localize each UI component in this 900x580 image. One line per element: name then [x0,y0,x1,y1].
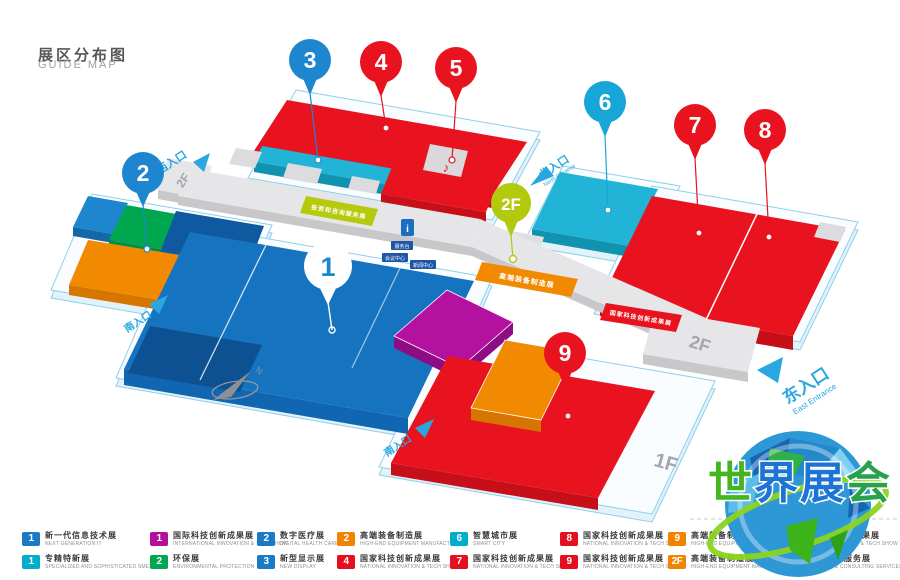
legend-zone-badge: 1 [150,532,168,546]
legend-zone-badge: 2 [257,532,275,546]
legend-item: 8国家科技创新成果展NATIONAL INNOVATION & TECH SHO… [560,532,682,547]
legend-zh: 智慧城市展 [473,532,518,540]
legend-zone-badge: 7 [450,555,468,569]
logo-char-1: 世 [708,459,752,508]
legend-zone-badge: 9 [668,532,686,546]
logo-char-3: 展 [800,459,844,508]
legend-zh: 专精特新展 [45,555,153,563]
legend-zone-badge: 4 [337,555,355,569]
legend-en: NEW DISPLAY [280,565,325,570]
logo-char-2: 界 [754,459,798,508]
legend-zh: 国家科技创新成果展 [473,555,572,563]
legend-item: 1新一代信息技术展NEXT GENERATION IT [22,532,117,547]
legend-item: 2高端装备制造展HIGH-END EQUIPMENT MANUFACTURING [337,532,467,547]
legend-en: NATIONAL INNOVATION & TECH SHOW [360,565,459,570]
legend-en: DIGITAL HEALTH CARE [280,542,339,547]
legend-zh: 国家科技创新成果展 [360,555,459,563]
world-expo-logo: 世 界 展 会 [690,418,900,580]
legend-item: 4国家科技创新成果展NATIONAL INNOVATION & TECH SHO… [337,555,459,570]
legend-item: 1专精特新展SPECIALIZED AND SOPHISTICATED SMES [22,555,153,570]
legend-zone-badge: 9 [560,555,578,569]
legend-en: SPECIALIZED AND SOPHISTICATED SMES [45,565,153,570]
legend-zone-badge: 2 [337,532,355,546]
legend-zh: 数字医疗展 [280,532,339,540]
legend-zh: 环保展 [173,555,254,563]
legend-item: 2环保展ENVIRONMENTAL PROTECTION [150,555,254,570]
logo-char-4: 会 [846,459,890,508]
legend-item: 7国家科技创新成果展NATIONAL INNOVATION & TECH SHO… [450,555,572,570]
legend-zone-badge: 2 [150,555,168,569]
legend-item: 6智慧城市展SMART CITY [450,532,518,547]
legend-en: SMART CITY [473,542,518,547]
legend-zone-badge: 1 [22,555,40,569]
legend-en: NEXT GENERATION IT [45,542,117,547]
legend-item: 9国家科技创新成果展NATIONAL INNOVATION & TECH SHO… [560,555,682,570]
legend-zone-badge: 3 [257,555,275,569]
legend-zone-badge: 2F [668,555,686,569]
legend-en: ENVIRONMENTAL PROTECTION [173,565,254,570]
legend-item: 2数字医疗展DIGITAL HEALTH CARE [257,532,339,547]
legend-en: NATIONAL INNOVATION & TECH SHOW [473,565,572,570]
legend-zone-badge: 8 [560,532,578,546]
legend-zone-badge: 1 [22,532,40,546]
legend-zh: 新型显示展 [280,555,325,563]
legend-zh: 新一代信息技术展 [45,532,117,540]
legend-zone-badge: 6 [450,532,468,546]
guide-map-page: 2F 2F ♪ 投资和咨询服务展 高端装备制造展 国家科技创新成果展 1F i … [0,0,900,580]
legend-item: 3新型显示展NEW DISPLAY [257,555,325,570]
